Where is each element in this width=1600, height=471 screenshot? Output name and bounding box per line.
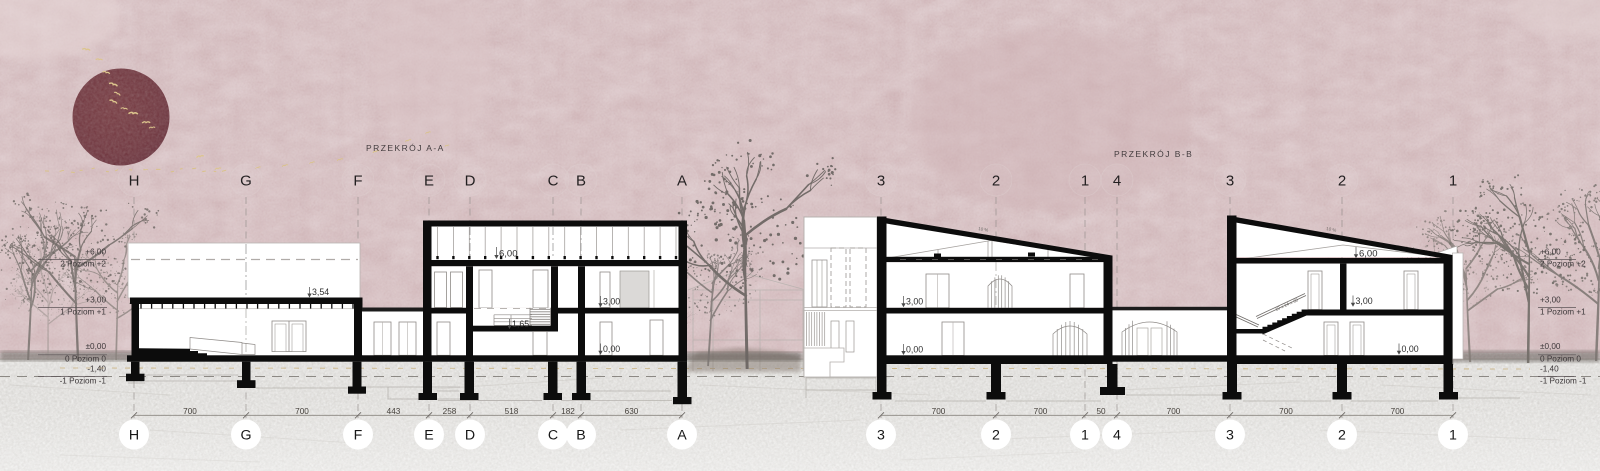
svg-text:B: B <box>576 173 586 190</box>
svg-text:-1,40: -1,40 <box>87 365 106 374</box>
svg-text:PRZEKRÓJ B-B: PRZEKRÓJ B-B <box>1114 149 1193 159</box>
svg-text:D: D <box>465 428 475 444</box>
svg-text:G: G <box>240 428 251 444</box>
svg-text:2: 2 <box>1338 428 1346 444</box>
svg-text:2: 2 <box>1338 173 1346 190</box>
svg-text:A: A <box>677 428 687 444</box>
svg-text:±0,00: ±0,00 <box>86 342 107 351</box>
svg-text:4: 4 <box>1113 173 1121 190</box>
svg-text:0,00: 0,00 <box>906 345 923 355</box>
svg-text:0,00: 0,00 <box>1402 344 1419 354</box>
svg-text:-1,40: -1,40 <box>1540 365 1559 374</box>
svg-text:2: 2 <box>992 428 1000 444</box>
svg-text:4: 4 <box>1113 428 1121 444</box>
svg-text:E: E <box>424 428 433 444</box>
svg-text:6,00: 6,00 <box>499 249 518 260</box>
svg-text:2 Poziom +2: 2 Poziom +2 <box>60 260 106 269</box>
svg-text:700: 700 <box>183 407 197 416</box>
svg-text:0 Poziom 0: 0 Poziom 0 <box>65 355 106 364</box>
svg-text:700: 700 <box>1034 407 1048 416</box>
svg-text:A: A <box>677 173 687 190</box>
svg-text:2 Poziom +2: 2 Poziom +2 <box>1540 260 1586 269</box>
svg-text:3,00: 3,00 <box>906 297 923 307</box>
svg-text:E: E <box>424 173 434 190</box>
svg-text:1,65: 1,65 <box>512 319 529 329</box>
svg-text:630: 630 <box>625 407 639 416</box>
svg-text:F: F <box>354 428 363 444</box>
svg-text:+3,00: +3,00 <box>1540 296 1561 305</box>
svg-text:518: 518 <box>505 407 519 416</box>
svg-text:6,00: 6,00 <box>1359 249 1378 260</box>
svg-text:258: 258 <box>443 407 457 416</box>
svg-text:3,00: 3,00 <box>603 297 620 307</box>
svg-text:D: D <box>465 173 476 190</box>
svg-text:C: C <box>548 173 559 190</box>
svg-text:3: 3 <box>1226 173 1234 190</box>
svg-text:1 Poziom +1: 1 Poziom +1 <box>1540 308 1586 317</box>
svg-text:700: 700 <box>1167 407 1181 416</box>
svg-text:C: C <box>548 428 558 444</box>
svg-text:PRZEKRÓJ A-A: PRZEKRÓJ A-A <box>366 143 445 153</box>
svg-text:1: 1 <box>1449 428 1457 444</box>
svg-text:700: 700 <box>1279 407 1293 416</box>
svg-text:2: 2 <box>992 173 1000 190</box>
svg-text:-1 Poziom -1: -1 Poziom -1 <box>60 377 107 386</box>
svg-text:700: 700 <box>932 407 946 416</box>
svg-text:3,00: 3,00 <box>1356 296 1373 306</box>
svg-text:3: 3 <box>1226 428 1234 444</box>
svg-text:700: 700 <box>295 407 309 416</box>
svg-text:443: 443 <box>387 407 401 416</box>
svg-text:±0,00: ±0,00 <box>1540 342 1561 351</box>
svg-text:1: 1 <box>1081 428 1089 444</box>
svg-text:F: F <box>353 173 362 190</box>
svg-text:+6,00: +6,00 <box>85 248 106 257</box>
svg-text:0,00: 0,00 <box>603 344 620 354</box>
svg-text:0 Poziom 0: 0 Poziom 0 <box>1540 355 1581 364</box>
svg-text:3: 3 <box>877 428 885 444</box>
svg-text:3: 3 <box>877 173 885 190</box>
svg-text:G: G <box>240 173 252 190</box>
svg-text:-1 Poziom -1: -1 Poziom -1 <box>1540 377 1587 386</box>
svg-text:+6,00: +6,00 <box>1540 248 1561 257</box>
svg-text:700: 700 <box>1391 407 1405 416</box>
svg-text:50: 50 <box>1096 407 1106 416</box>
svg-text:3,54: 3,54 <box>312 287 329 297</box>
svg-text:B: B <box>576 428 585 444</box>
svg-text:H: H <box>129 428 139 444</box>
svg-text:1: 1 <box>1449 173 1457 190</box>
svg-text:+3,00: +3,00 <box>85 296 106 305</box>
svg-text:182: 182 <box>561 407 575 416</box>
svg-text:1: 1 <box>1081 173 1089 190</box>
svg-text:1 Poziom +1: 1 Poziom +1 <box>60 308 106 317</box>
svg-text:H: H <box>129 173 140 190</box>
